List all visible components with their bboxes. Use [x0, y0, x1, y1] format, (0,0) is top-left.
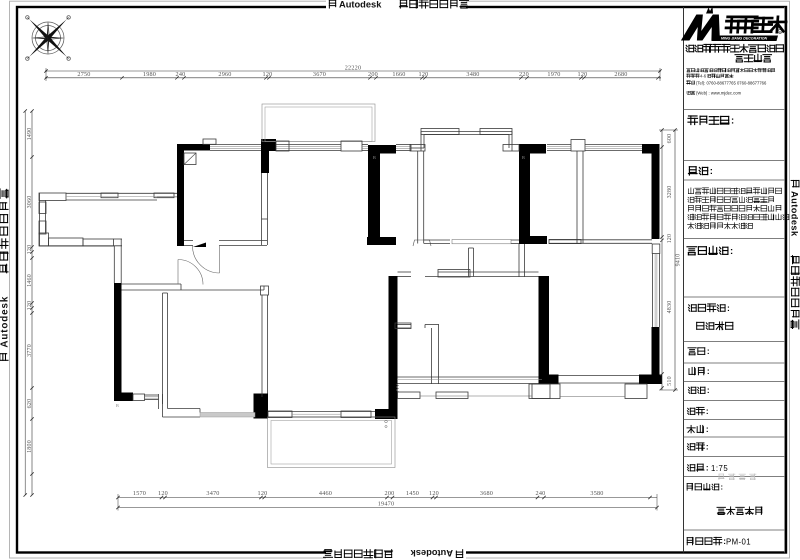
svg-text:1570: 1570	[133, 490, 146, 497]
svg-text:Autodesk: Autodesk	[0, 296, 11, 348]
svg-text::: :	[706, 407, 709, 416]
svg-text:120: 120	[419, 71, 429, 78]
svg-text:3470: 3470	[206, 490, 219, 497]
svg-text:4460: 4460	[319, 490, 332, 497]
svg-text:220: 220	[519, 71, 529, 78]
svg-text:3060: 3060	[27, 196, 33, 209]
svg-text:(Tel): 0760-88677765 0760-886: (Tel): 0760-88677765 0760-88677766	[696, 80, 767, 85]
svg-text:120: 120	[667, 234, 673, 244]
svg-text::: :	[706, 463, 709, 472]
svg-text:PM-01: PM-01	[726, 538, 751, 547]
svg-text:3680: 3680	[480, 490, 493, 497]
svg-text::: :	[706, 442, 709, 451]
svg-text:9410: 9410	[676, 254, 682, 267]
svg-text:120: 120	[263, 71, 273, 78]
svg-text:1800: 1800	[27, 440, 33, 453]
svg-text::: :	[727, 303, 730, 313]
svg-text:600: 600	[667, 134, 673, 144]
svg-text:240: 240	[536, 490, 546, 497]
svg-text:2960: 2960	[218, 71, 231, 78]
svg-text:2750: 2750	[77, 71, 90, 78]
svg-text:1490: 1490	[27, 128, 33, 141]
svg-text:Autodesk: Autodesk	[410, 548, 453, 558]
svg-text:240: 240	[176, 71, 186, 78]
svg-text:Autodesk: Autodesk	[339, 0, 382, 10]
svg-text:2680: 2680	[614, 71, 627, 78]
svg-text:3580: 3580	[590, 490, 603, 497]
svg-text:620: 620	[27, 399, 33, 409]
svg-text:120: 120	[258, 490, 268, 497]
svg-text::: :	[707, 347, 710, 356]
svg-text:4830: 4830	[667, 301, 673, 314]
svg-text:3280: 3280	[667, 186, 673, 199]
svg-text:1970: 1970	[547, 71, 560, 78]
svg-text:120: 120	[578, 71, 588, 78]
svg-text::: :	[707, 386, 710, 395]
svg-text:B: B	[522, 155, 525, 160]
svg-text::: :	[706, 425, 709, 434]
svg-text::: :	[731, 116, 734, 127]
svg-text:1:75: 1:75	[711, 464, 728, 473]
svg-text::: :	[730, 246, 733, 257]
svg-text:200: 200	[368, 71, 378, 78]
svg-text:3770: 3770	[27, 344, 33, 357]
svg-text:120: 120	[158, 490, 168, 497]
svg-text:R: R	[779, 30, 781, 34]
svg-text:3480: 3480	[466, 71, 479, 78]
svg-text:B: B	[373, 155, 376, 160]
svg-text:3670: 3670	[313, 71, 326, 78]
svg-text::: :	[710, 166, 713, 177]
svg-text:B: B	[116, 403, 119, 408]
svg-text:120: 120	[27, 301, 33, 311]
svg-text:22220: 22220	[345, 65, 361, 72]
svg-text:Autodesk: Autodesk	[790, 191, 800, 237]
svg-text:(Web) : www.mjdec.com: (Web) : www.mjdec.com	[696, 91, 742, 96]
svg-text:120: 120	[429, 490, 439, 497]
svg-text:1450: 1450	[406, 490, 419, 497]
svg-text:1660: 1660	[392, 71, 405, 78]
svg-text:120: 120	[27, 245, 33, 255]
svg-text:200: 200	[385, 490, 395, 497]
svg-text:510: 510	[667, 376, 673, 386]
svg-text:1460: 1460	[27, 274, 33, 287]
svg-text:19470: 19470	[378, 501, 394, 508]
svg-text:MING JIANG DECORATION: MING JIANG DECORATION	[721, 37, 768, 41]
svg-text:1980: 1980	[143, 71, 156, 78]
svg-text::: :	[707, 367, 710, 376]
svg-text:4-6: 4-6	[700, 74, 707, 79]
svg-text::: :	[721, 482, 724, 491]
